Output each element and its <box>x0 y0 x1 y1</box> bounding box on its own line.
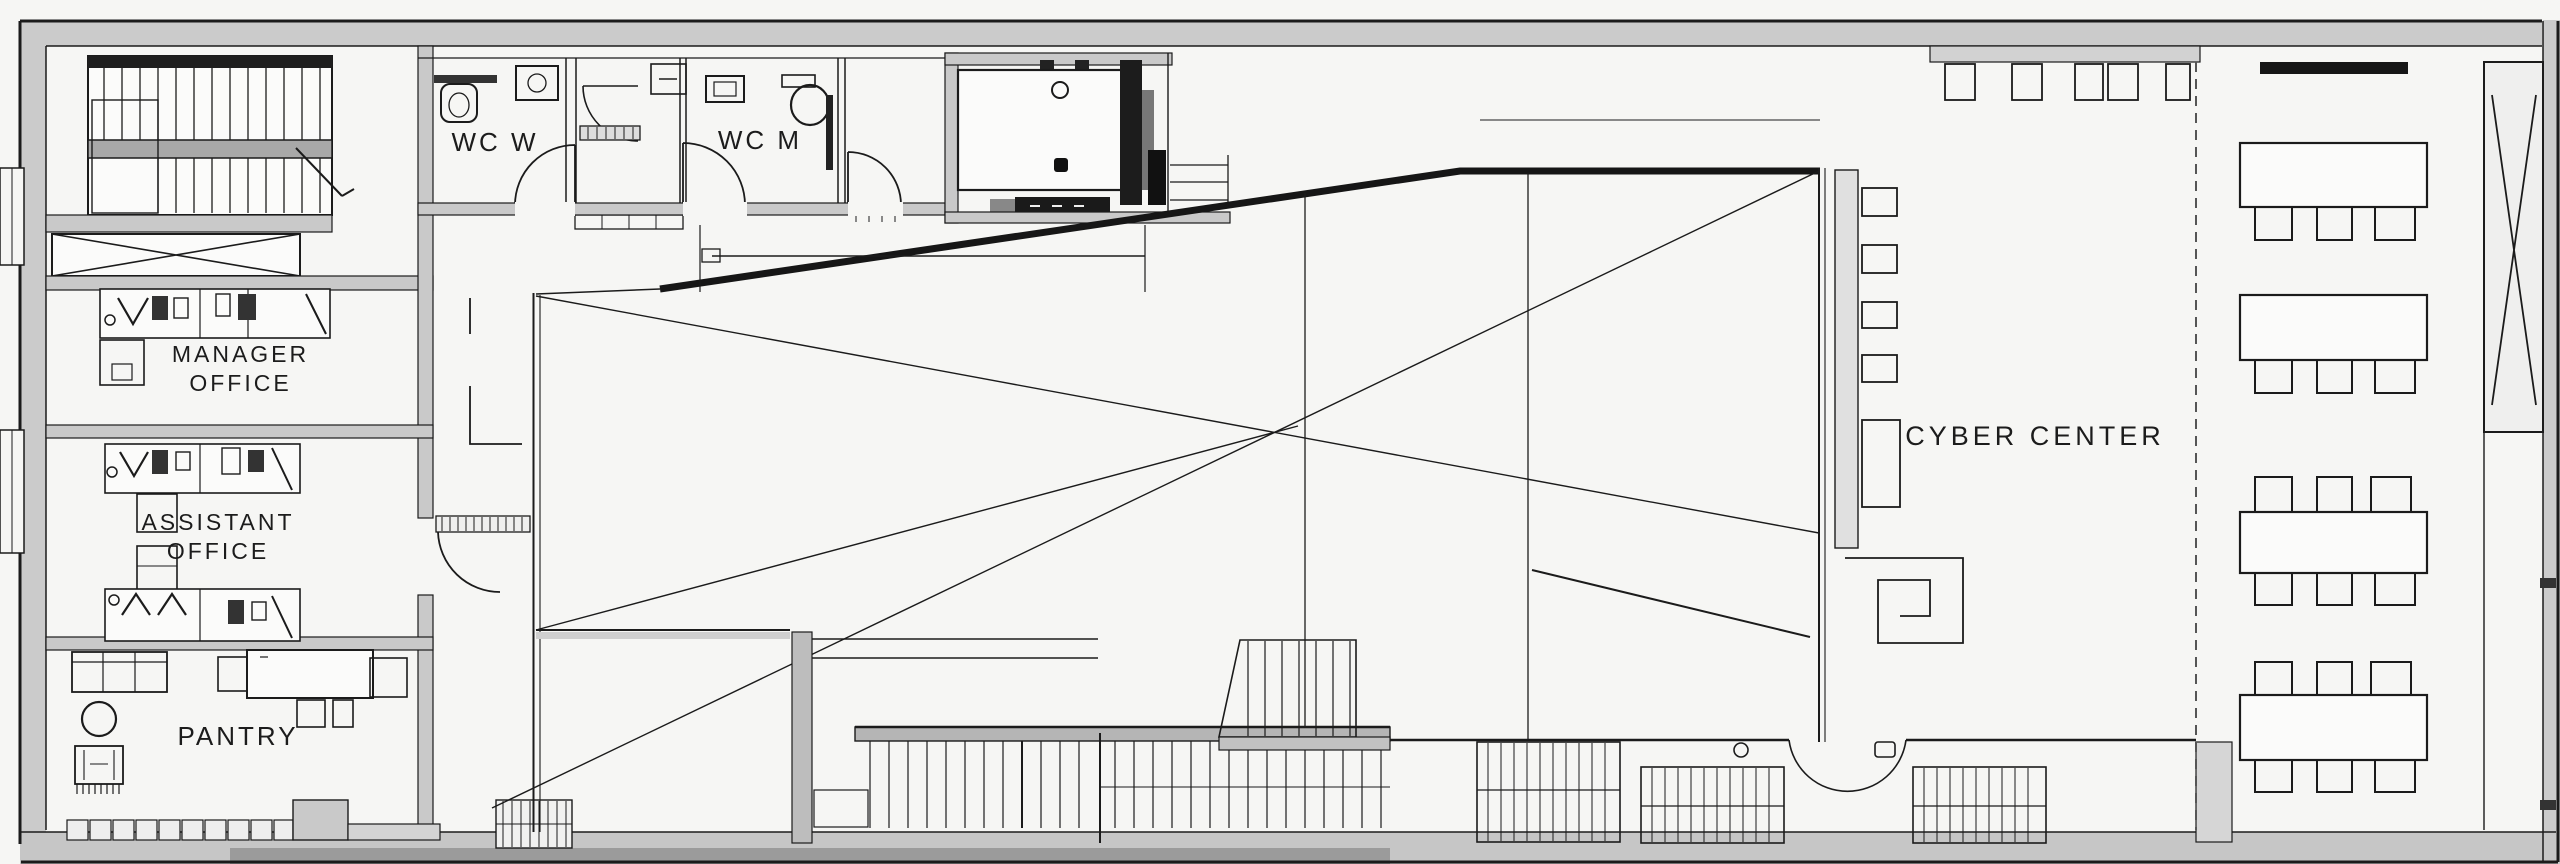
stair-flight <box>1219 640 1356 737</box>
void-diagonal <box>536 296 1819 533</box>
spiral-desk <box>1845 558 1963 643</box>
label-line: OFFICE <box>118 537 318 566</box>
label-line: OFFICE <box>148 369 333 398</box>
chair <box>2317 207 2352 240</box>
chair <box>2375 573 2415 605</box>
shelf <box>1170 155 1228 205</box>
floor-plan-drawing <box>0 0 2560 864</box>
chair <box>2255 573 2292 605</box>
room-label-wc-w: WC W <box>430 126 560 159</box>
table <box>2240 695 2427 760</box>
chair <box>2317 662 2352 695</box>
sofa <box>72 652 167 692</box>
reading-area <box>2240 62 2427 792</box>
toilet <box>441 84 477 122</box>
stool <box>1862 355 1897 382</box>
chair <box>2255 360 2292 393</box>
stair-rail <box>812 639 1098 658</box>
room-label-assistant-office: ASSISTANT OFFICE <box>118 508 318 566</box>
room-outline <box>958 70 1122 190</box>
door-swing <box>848 152 901 205</box>
fixture <box>1875 742 1895 757</box>
desk-row <box>105 444 300 493</box>
label-line: MANAGER <box>148 340 333 369</box>
stair-rail <box>1532 570 1810 637</box>
room-label-wc-m: WC M <box>695 124 825 157</box>
grid-line <box>1305 173 1528 740</box>
room-label-cyber-center: CYBER CENTER <box>1895 420 2175 454</box>
stool <box>333 700 353 727</box>
chair <box>2375 207 2415 240</box>
room-label-manager-office: MANAGER OFFICE <box>148 340 333 398</box>
equipment-room <box>945 53 1230 223</box>
bottom-corridor <box>1390 740 2232 843</box>
whiteboard <box>2260 62 2408 74</box>
void-diagonal <box>492 171 1819 808</box>
chair <box>2317 477 2352 512</box>
server-rack <box>1120 60 1142 205</box>
side-table <box>100 340 144 385</box>
chair <box>2371 477 2411 512</box>
label-line: ASSISTANT <box>118 508 318 537</box>
wall-tick <box>2540 578 2556 588</box>
sink <box>706 76 744 102</box>
desk-row <box>100 289 330 338</box>
door-swing <box>1789 740 1906 791</box>
table <box>2240 143 2427 207</box>
balustrade-edge <box>660 171 1820 289</box>
staircase-top-left <box>46 56 354 232</box>
chair <box>2317 360 2352 393</box>
chair <box>2317 760 2352 792</box>
central-hall <box>492 120 1825 832</box>
chair <box>2255 662 2292 695</box>
stool <box>1862 188 1897 216</box>
elevator-shaft <box>46 234 433 290</box>
chair <box>2255 207 2292 240</box>
round-table <box>82 702 116 736</box>
armchair <box>75 746 123 784</box>
landing <box>814 790 868 827</box>
chair <box>2371 662 2411 695</box>
table <box>2240 295 2427 360</box>
grand-staircase <box>792 570 1810 843</box>
wall-tick <box>2540 800 2556 810</box>
chair <box>370 658 407 697</box>
cabinet-row <box>67 820 293 840</box>
chair <box>2375 760 2415 792</box>
sink <box>516 66 558 100</box>
table <box>2240 512 2427 573</box>
stool-row-top <box>1945 64 2190 100</box>
chair <box>2317 573 2352 605</box>
floor-plan: WC W WC M MANAGER OFFICE ASSISTANT OFFIC… <box>0 0 2560 864</box>
toilet <box>791 85 829 125</box>
void-diagonal <box>536 426 1298 630</box>
escalator-shaft <box>2484 62 2543 830</box>
stool <box>1862 245 1897 273</box>
stair-down <box>1477 742 1620 842</box>
chair <box>218 657 250 691</box>
chair <box>2375 360 2415 393</box>
stool <box>1862 302 1897 328</box>
corridor-left <box>436 298 572 848</box>
sink-counter <box>580 126 640 140</box>
fixture <box>1734 743 1748 757</box>
room-label-pantry: PANTRY <box>158 720 318 753</box>
door-swing <box>438 532 500 592</box>
chair <box>2255 477 2292 512</box>
chair <box>2255 760 2292 792</box>
